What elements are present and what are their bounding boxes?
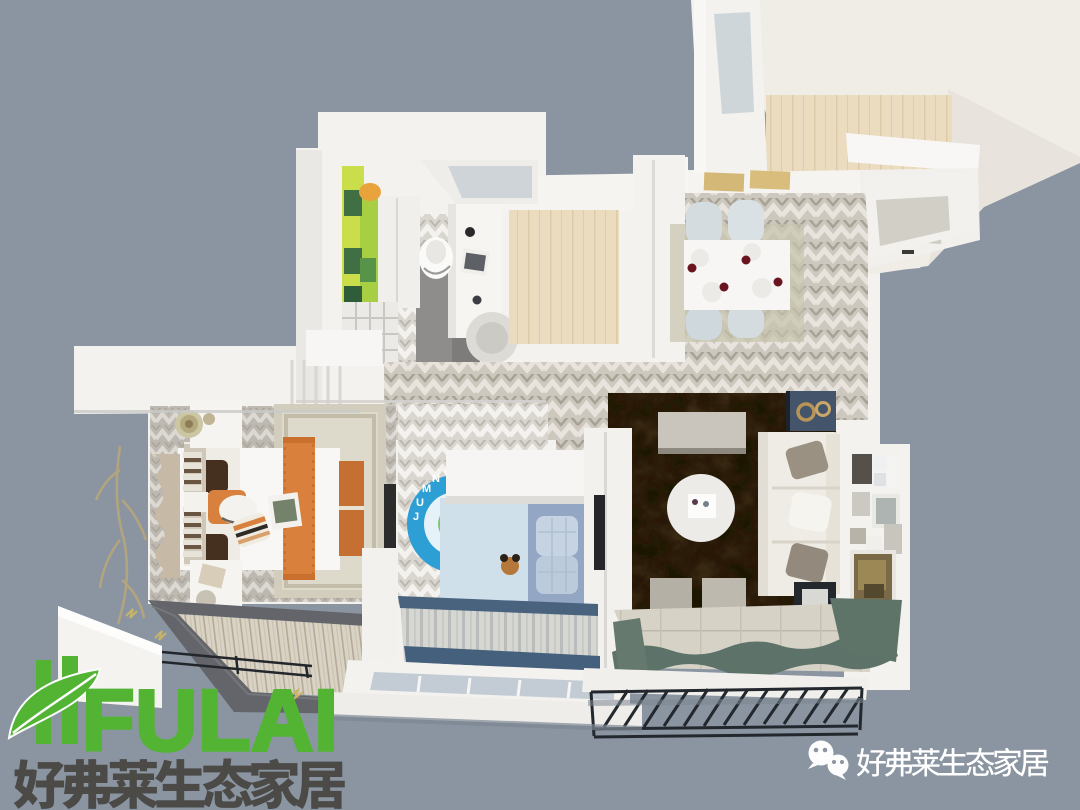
svg-text:M: M (422, 483, 431, 495)
svg-text:FULAI: FULAI (82, 673, 338, 769)
svg-text:N: N (432, 473, 440, 485)
svg-text:U: U (416, 497, 424, 509)
svg-text:J: J (413, 511, 419, 523)
